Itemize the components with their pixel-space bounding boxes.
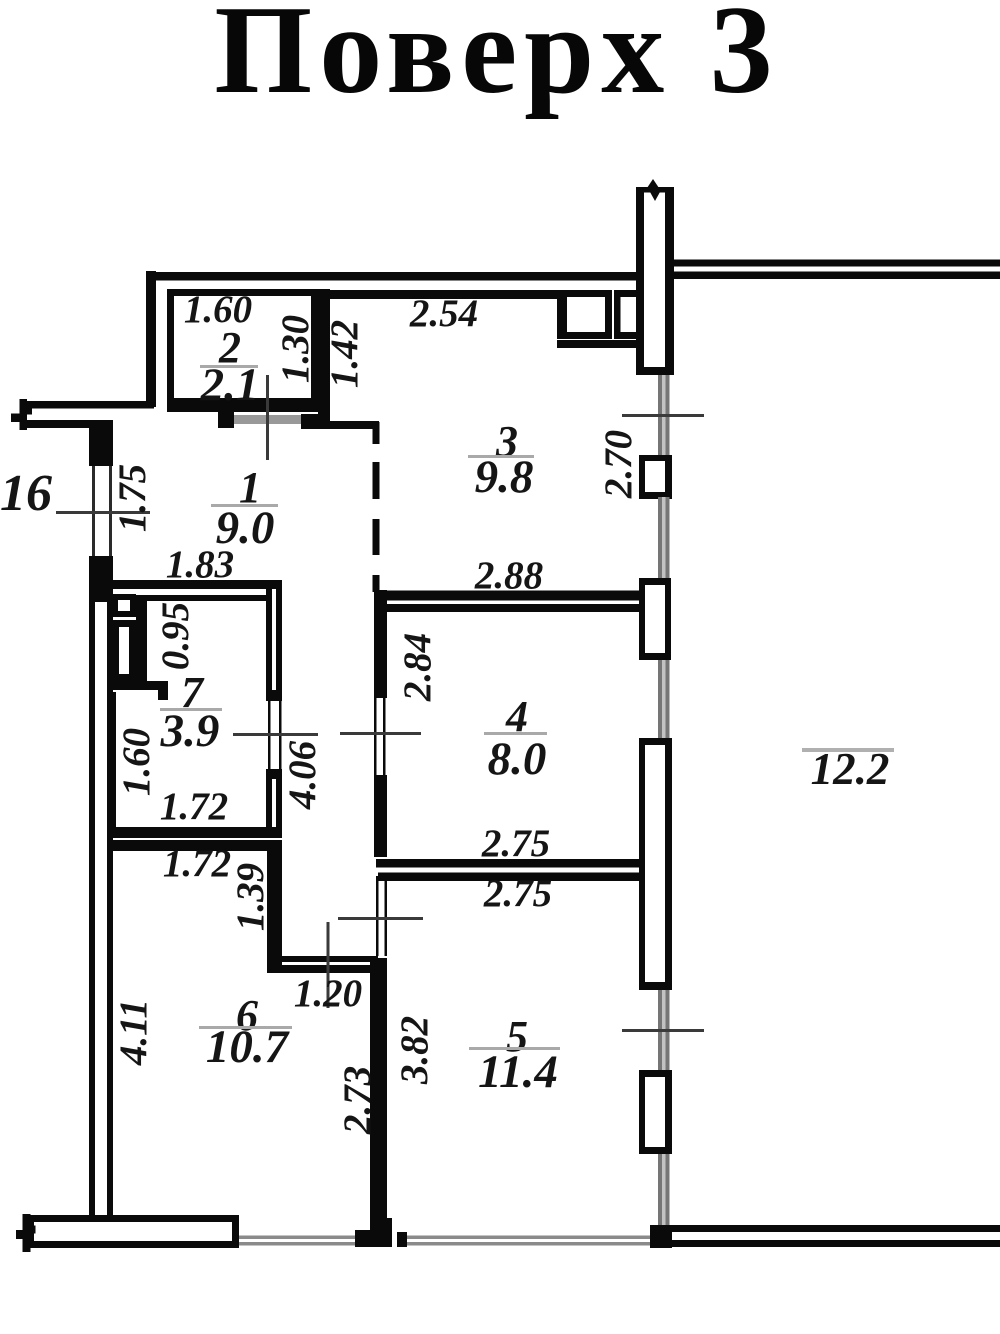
svg-text:10.7: 10.7 bbox=[206, 1021, 291, 1073]
svg-text:1.20: 1.20 bbox=[294, 972, 362, 1015]
svg-text:1.72: 1.72 bbox=[160, 785, 228, 828]
svg-text:1.39: 1.39 bbox=[229, 863, 272, 931]
svg-text:2.75: 2.75 bbox=[481, 822, 550, 865]
svg-text:9.0: 9.0 bbox=[216, 502, 275, 554]
svg-text:2.75: 2.75 bbox=[483, 872, 552, 915]
svg-text:1.30: 1.30 bbox=[274, 315, 317, 383]
svg-text:11.4: 11.4 bbox=[478, 1046, 558, 1098]
svg-text:3.82: 3.82 bbox=[393, 1016, 436, 1085]
svg-text:1.75: 1.75 bbox=[111, 464, 154, 532]
svg-text:2.1: 2.1 bbox=[200, 359, 260, 411]
svg-text:2.54: 2.54 bbox=[409, 292, 478, 335]
svg-text:1.60: 1.60 bbox=[115, 728, 158, 796]
svg-text:8.0: 8.0 bbox=[488, 733, 547, 785]
svg-text:2.70: 2.70 bbox=[597, 430, 640, 499]
svg-text:0.95: 0.95 bbox=[154, 602, 197, 670]
svg-text:16: 16 bbox=[0, 465, 52, 522]
svg-text:9.8: 9.8 bbox=[475, 451, 534, 503]
svg-text:1.42: 1.42 bbox=[323, 320, 366, 388]
svg-text:2.88: 2.88 bbox=[474, 554, 543, 597]
svg-text:12.2: 12.2 bbox=[811, 744, 890, 794]
svg-text:Поверх 3: Поверх 3 bbox=[214, 0, 779, 120]
svg-text:4.06: 4.06 bbox=[281, 740, 324, 810]
svg-text:2.73: 2.73 bbox=[336, 1066, 379, 1135]
svg-text:1.72: 1.72 bbox=[163, 842, 231, 885]
svg-text:2.84: 2.84 bbox=[396, 633, 439, 702]
svg-text:4.11: 4.11 bbox=[112, 999, 155, 1066]
svg-text:3.9: 3.9 bbox=[160, 705, 220, 757]
svg-text:1.60: 1.60 bbox=[184, 288, 252, 331]
